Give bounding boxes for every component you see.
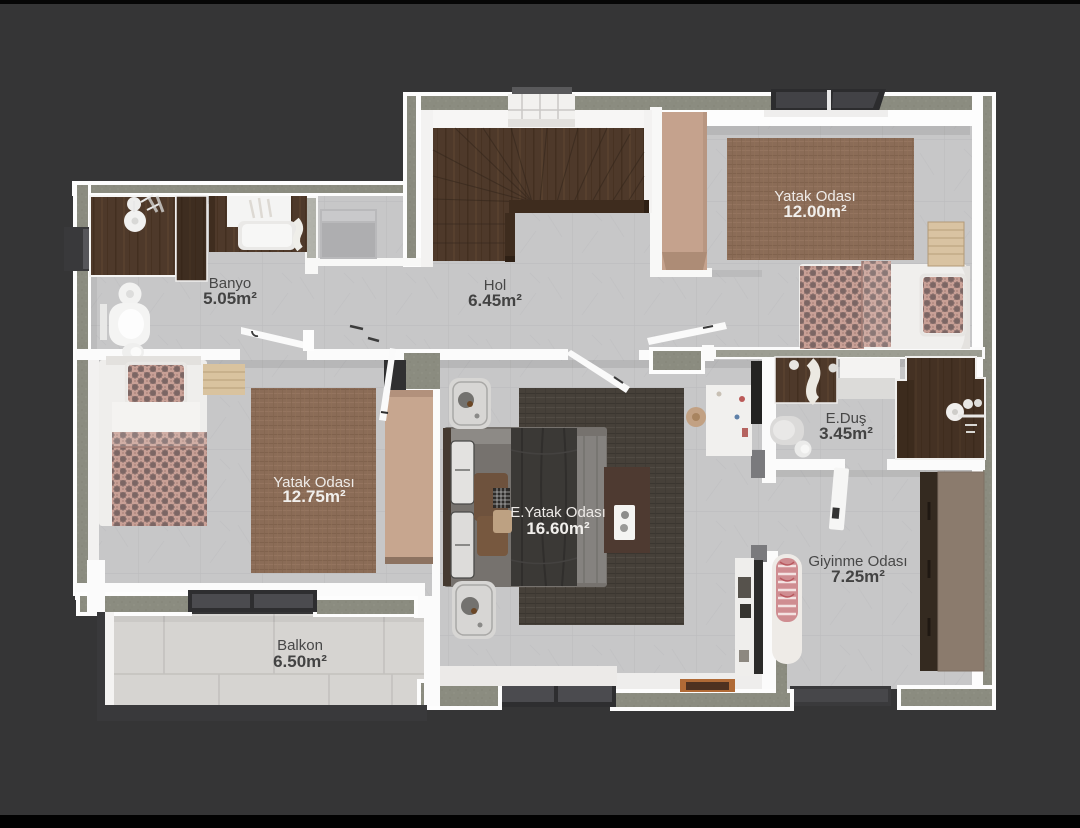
svg-text:12.75m²: 12.75m² (282, 487, 346, 506)
svg-text:16.60m²: 16.60m² (526, 519, 590, 538)
svg-text:6.50m²: 6.50m² (273, 652, 327, 671)
svg-text:5.05m²: 5.05m² (203, 289, 257, 308)
svg-text:12.00m²: 12.00m² (783, 202, 847, 221)
svg-text:6.45m²: 6.45m² (468, 291, 522, 310)
svg-text:3.45m²: 3.45m² (819, 424, 873, 443)
svg-text:7.25m²: 7.25m² (831, 567, 885, 586)
